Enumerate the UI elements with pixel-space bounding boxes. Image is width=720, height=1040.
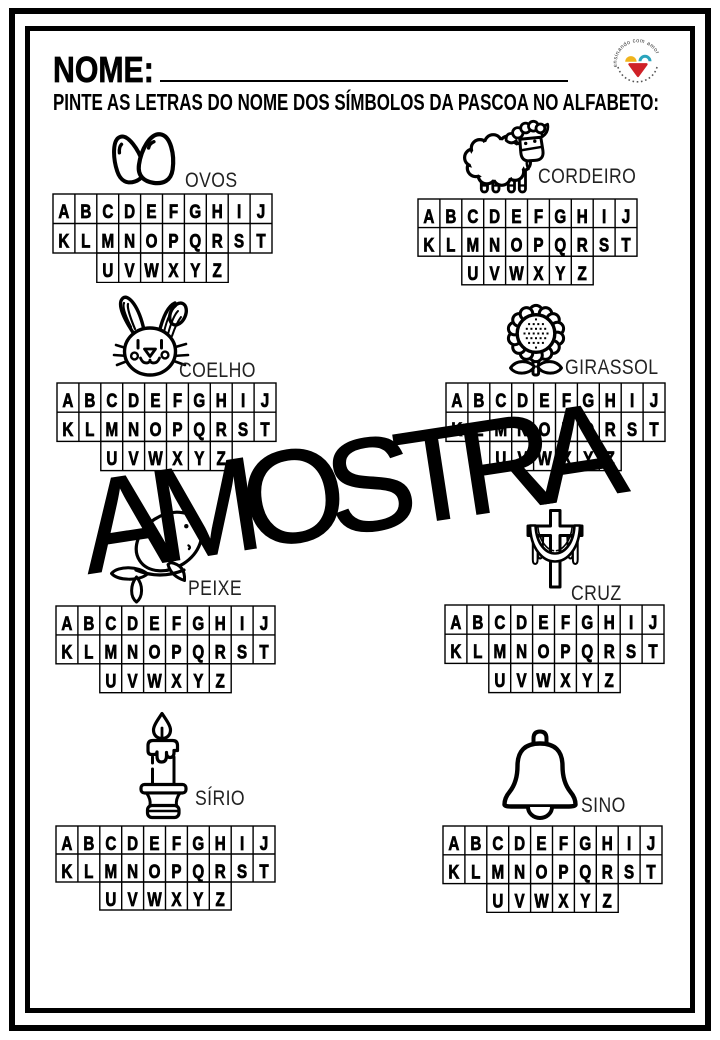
svg-text:O: O [149, 641, 161, 663]
svg-text:H: H [603, 611, 614, 633]
svg-text:B: B [470, 832, 481, 854]
svg-text:V: V [489, 262, 500, 284]
svg-text:G: G [193, 389, 205, 411]
svg-text:X: X [560, 670, 571, 692]
svg-text:L: L [84, 641, 93, 663]
svg-text:L: L [473, 640, 482, 662]
svg-text:M: M [493, 640, 506, 662]
svg-text:N: N [514, 860, 525, 882]
svg-text:P: P [171, 641, 181, 663]
svg-text:E: E [146, 200, 156, 222]
svg-text:Z: Z [603, 889, 612, 911]
svg-text:C: C [105, 612, 116, 634]
svg-text:D: D [514, 832, 525, 854]
svg-text:W: W [536, 670, 551, 692]
svg-text:F: F [533, 205, 542, 227]
svg-text:C: C [494, 611, 505, 633]
svg-text:B: B [84, 389, 95, 411]
svg-text:M: M [105, 418, 118, 440]
svg-text:A: A [58, 200, 69, 222]
svg-text:R: R [576, 233, 587, 255]
svg-text:Y: Y [582, 670, 593, 692]
svg-text:K: K [423, 233, 434, 255]
svg-text:Y: Y [555, 262, 566, 284]
svg-text:F: F [172, 832, 181, 854]
svg-text:K: K [62, 418, 73, 440]
svg-text:Z: Z [577, 262, 586, 284]
svg-text:N: N [127, 860, 138, 882]
svg-text:U: U [494, 670, 505, 692]
svg-text:A: A [423, 205, 434, 227]
svg-text:L: L [85, 418, 94, 440]
svg-text:Z: Z [604, 670, 613, 692]
svg-text:J: J [621, 205, 629, 227]
svg-text:D: D [516, 611, 527, 633]
svg-text:C: C [102, 200, 113, 222]
svg-text:F: F [560, 611, 569, 633]
svg-text:V: V [516, 670, 527, 692]
svg-text:Y: Y [190, 259, 201, 281]
svg-text:C: C [105, 832, 116, 854]
svg-text:Q: Q [192, 641, 204, 663]
svg-text:A: A [450, 611, 461, 633]
svg-text:H: H [215, 832, 226, 854]
svg-text:O: O [145, 230, 157, 252]
svg-text:G: G [581, 611, 593, 633]
svg-text:D: D [128, 389, 139, 411]
svg-text:M: M [466, 233, 479, 255]
svg-text:T: T [646, 860, 656, 882]
svg-text:G: G [579, 832, 591, 854]
svg-text:R: R [603, 640, 614, 662]
svg-text:S: S [237, 860, 247, 882]
svg-text:S: S [626, 640, 636, 662]
svg-text:U: U [105, 669, 116, 691]
svg-text:N: N [516, 640, 527, 662]
svg-text:N: N [127, 641, 138, 663]
svg-text:Q: Q [192, 860, 204, 882]
svg-text:F: F [172, 612, 181, 634]
svg-text:Z: Z [212, 259, 221, 281]
svg-text:T: T [259, 641, 269, 663]
svg-text:V: V [128, 888, 139, 910]
svg-text:M: M [101, 230, 114, 252]
svg-text:H: H [216, 389, 227, 411]
svg-text:H: H [215, 612, 226, 634]
svg-text:U: U [492, 889, 503, 911]
svg-text:K: K [450, 640, 461, 662]
svg-text:C: C [467, 205, 478, 227]
svg-text:A: A [448, 832, 459, 854]
svg-text:D: D [127, 612, 138, 634]
svg-text:Y: Y [580, 889, 591, 911]
svg-text:B: B [80, 200, 91, 222]
svg-text:T: T [649, 418, 659, 440]
svg-text:I: I [628, 611, 632, 633]
svg-text:X: X [171, 888, 182, 910]
svg-text:P: P [558, 860, 568, 882]
svg-text:E: E [511, 205, 521, 227]
svg-text:T: T [621, 233, 631, 255]
svg-text:S: S [234, 230, 244, 252]
svg-text:W: W [144, 259, 159, 281]
svg-text:B: B [472, 611, 483, 633]
svg-text:P: P [560, 640, 570, 662]
svg-text:K: K [61, 641, 72, 663]
svg-text:X: X [533, 262, 544, 284]
svg-text:L: L [446, 233, 455, 255]
svg-text:F: F [168, 200, 177, 222]
svg-text:Q: Q [581, 640, 593, 662]
svg-text:E: E [149, 832, 159, 854]
svg-text:T: T [256, 230, 266, 252]
svg-text:C: C [106, 389, 117, 411]
svg-text:I: I [236, 200, 240, 222]
svg-text:A: A [61, 612, 72, 634]
svg-text:E: E [149, 612, 159, 634]
svg-text:G: G [192, 832, 204, 854]
svg-text:F: F [559, 832, 568, 854]
svg-text:S: S [599, 233, 609, 255]
svg-text:U: U [102, 259, 113, 281]
svg-text:R: R [602, 860, 613, 882]
svg-text:Q: Q [579, 860, 591, 882]
svg-text:J: J [260, 832, 268, 854]
svg-text:N: N [124, 230, 135, 252]
svg-text:J: J [647, 832, 655, 854]
svg-text:Z: Z [216, 888, 225, 910]
svg-text:V: V [124, 259, 135, 281]
svg-text:K: K [448, 860, 459, 882]
svg-text:J: J [256, 200, 264, 222]
svg-text:Q: Q [554, 233, 566, 255]
svg-text:Q: Q [189, 230, 201, 252]
svg-text:P: P [168, 230, 178, 252]
svg-text:U: U [467, 262, 478, 284]
svg-text:M: M [104, 860, 117, 882]
svg-text:G: G [189, 200, 201, 222]
svg-text:Y: Y [193, 888, 204, 910]
svg-text:O: O [510, 233, 522, 255]
svg-text:F: F [173, 389, 182, 411]
svg-text:E: E [536, 832, 546, 854]
svg-text:S: S [237, 641, 247, 663]
svg-text:P: P [171, 860, 181, 882]
svg-text:B: B [83, 832, 94, 854]
svg-text:L: L [471, 860, 480, 882]
svg-text:I: I [627, 832, 631, 854]
svg-text:G: G [554, 205, 566, 227]
svg-text:Y: Y [193, 669, 204, 691]
svg-text:B: B [445, 205, 456, 227]
svg-text:X: X [558, 889, 569, 911]
svg-text:J: J [260, 612, 268, 634]
svg-text:D: D [489, 205, 500, 227]
svg-text:T: T [259, 860, 269, 882]
svg-text:J: J [261, 389, 269, 411]
svg-text:V: V [515, 889, 526, 911]
svg-text:P: P [533, 233, 543, 255]
svg-text:T: T [648, 640, 658, 662]
svg-text:S: S [627, 418, 637, 440]
svg-text:R: R [211, 230, 222, 252]
svg-text:G: G [192, 612, 204, 634]
svg-text:U: U [105, 888, 116, 910]
svg-text:I: I [601, 205, 605, 227]
svg-text:I: I [240, 612, 244, 634]
svg-text:X: X [171, 669, 182, 691]
svg-text:S: S [624, 860, 634, 882]
svg-text:R: R [604, 418, 615, 440]
svg-text:D: D [124, 200, 135, 222]
svg-text:B: B [83, 612, 94, 634]
svg-text:W: W [147, 669, 162, 691]
svg-text:K: K [61, 860, 72, 882]
svg-text:N: N [128, 418, 139, 440]
svg-text:O: O [537, 640, 549, 662]
svg-text:R: R [215, 860, 226, 882]
svg-text:H: H [602, 832, 613, 854]
svg-text:M: M [104, 641, 117, 663]
svg-text:E: E [150, 389, 160, 411]
svg-text:O: O [536, 860, 548, 882]
svg-text:X: X [168, 259, 179, 281]
svg-text:I: I [629, 389, 633, 411]
svg-text:I: I [240, 832, 244, 854]
svg-text:N: N [489, 233, 500, 255]
svg-text:D: D [127, 832, 138, 854]
svg-text:A: A [61, 832, 72, 854]
svg-text:L: L [84, 860, 93, 882]
svg-text:E: E [538, 611, 548, 633]
svg-text:W: W [534, 889, 549, 911]
svg-text:H: H [211, 200, 222, 222]
svg-text:W: W [509, 262, 524, 284]
svg-text:J: J [648, 611, 656, 633]
svg-text:H: H [576, 205, 587, 227]
svg-text:Z: Z [216, 669, 225, 691]
svg-text:W: W [147, 888, 162, 910]
svg-text:O: O [150, 418, 162, 440]
svg-text:O: O [149, 860, 161, 882]
svg-text:M: M [491, 860, 504, 882]
svg-text:L: L [81, 230, 90, 252]
svg-text:V: V [128, 669, 139, 691]
svg-text:R: R [215, 641, 226, 663]
svg-text:J: J [649, 389, 657, 411]
svg-text:H: H [604, 389, 615, 411]
svg-text:A: A [62, 389, 73, 411]
svg-text:C: C [492, 832, 503, 854]
svg-text:I: I [241, 389, 245, 411]
svg-text:K: K [58, 230, 69, 252]
